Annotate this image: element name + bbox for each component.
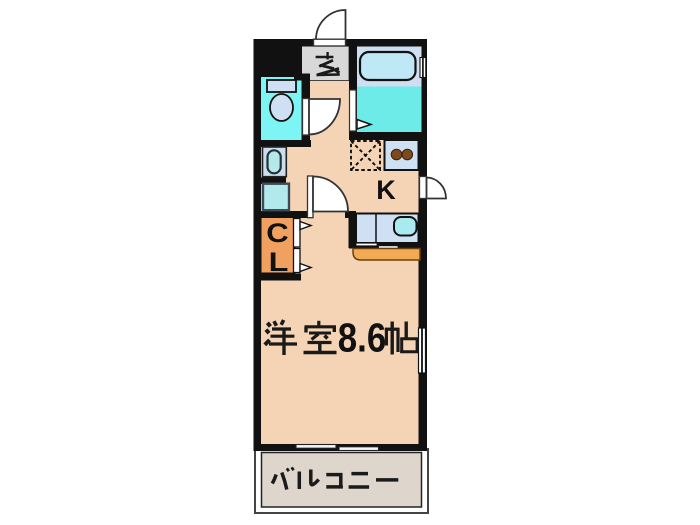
svg-text:K: K (376, 175, 396, 205)
svg-text:L: L (269, 247, 289, 277)
svg-text:8.6: 8.6 (338, 316, 386, 361)
svg-text:C: C (266, 219, 288, 249)
